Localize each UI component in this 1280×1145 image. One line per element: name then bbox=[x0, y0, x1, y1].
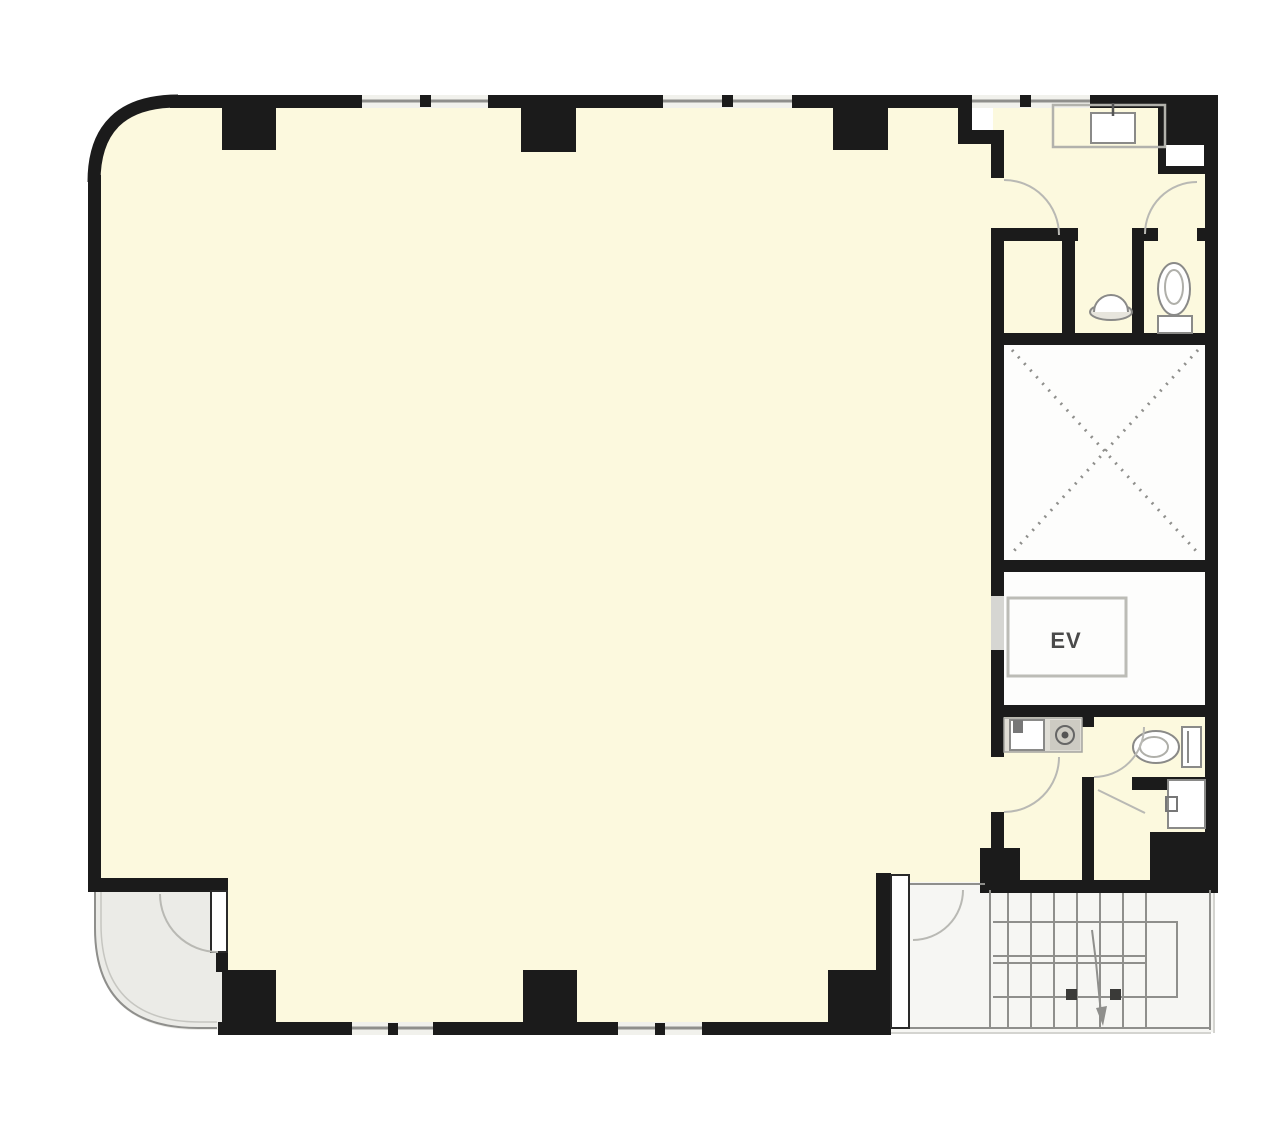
stair-cut-mark-1 bbox=[1066, 989, 1077, 1000]
column-top-3 bbox=[833, 95, 888, 150]
ev-label: EV bbox=[1050, 628, 1081, 653]
core-wall-left-upper bbox=[991, 142, 1004, 178]
stair-cut-mark-2 bbox=[1110, 989, 1121, 1000]
window-bottom-2 bbox=[618, 1022, 702, 1035]
column-bottom-2 bbox=[523, 970, 577, 1024]
pipe-shaft-lower bbox=[1150, 832, 1218, 893]
elevator-car: EV bbox=[1008, 598, 1126, 676]
core-wall-step-h bbox=[958, 130, 1004, 144]
outer-wall-right bbox=[1205, 95, 1218, 893]
window-bottom-1 bbox=[352, 1022, 433, 1035]
column-top-2 bbox=[521, 95, 576, 152]
washroom-bottom-wall-c bbox=[1197, 228, 1218, 241]
outer-wall-left bbox=[88, 175, 101, 886]
column-bottom-1 bbox=[222, 970, 276, 1024]
entrance-vestibule-floor bbox=[94, 884, 222, 1030]
kitchen-right-wall-lower bbox=[1082, 777, 1094, 893]
main-room-floor bbox=[100, 108, 993, 1022]
floor-plan-page: EV bbox=[0, 0, 1280, 1145]
ev-hall-bottom-wall bbox=[991, 705, 1218, 717]
column-top-1 bbox=[222, 95, 276, 150]
floor-plan: EV bbox=[0, 0, 1280, 1145]
stove bbox=[1050, 720, 1080, 750]
kitchen-door-gap bbox=[991, 757, 1004, 812]
core-bottom-wall-stub bbox=[980, 848, 1020, 893]
elevator-door-panel bbox=[991, 596, 1004, 650]
window-top-1 bbox=[362, 95, 488, 108]
entrance-top-wall bbox=[88, 878, 228, 892]
shaft-top-wall bbox=[991, 333, 1218, 345]
kitchen-right-wall-upper bbox=[1082, 705, 1094, 727]
toilet-upper bbox=[1158, 263, 1192, 333]
shaft-bottom-wall bbox=[991, 560, 1218, 572]
hand-sink bbox=[1166, 780, 1205, 828]
column-bottom-3 bbox=[828, 970, 884, 1024]
window-top-2 bbox=[663, 95, 792, 108]
kitchenette bbox=[1004, 718, 1082, 752]
urinal-partition-left bbox=[1062, 228, 1075, 333]
wc-partition bbox=[1132, 241, 1144, 333]
